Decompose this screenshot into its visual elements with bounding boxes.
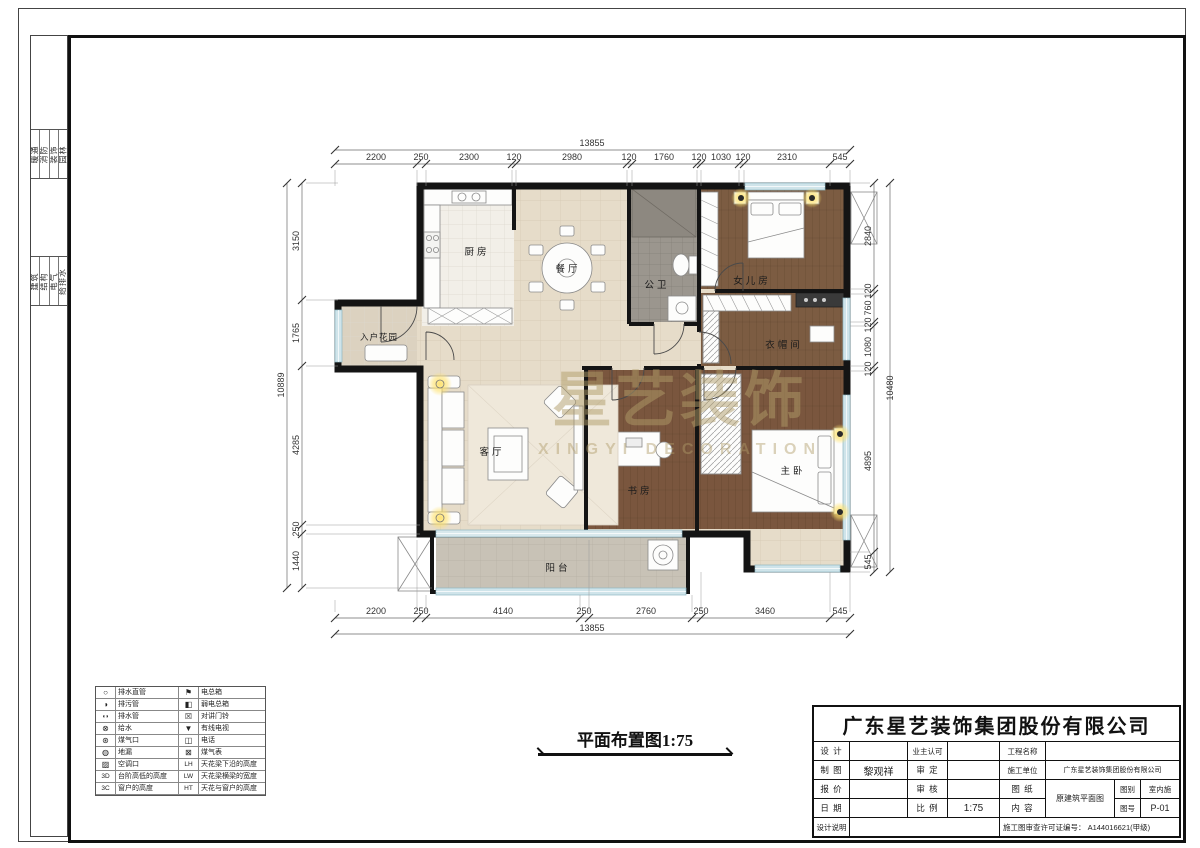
legend-label: 电总箱 (199, 687, 265, 699)
title-block-body: 设 计 业主认可 工程名称 制 图 黎观祥 审 定 施工单位 广东星艺装饰集团股… (814, 742, 1179, 837)
legend-label: 空调口 (116, 759, 179, 771)
value-number: P-01 (1141, 799, 1179, 818)
dim-right-total: 10480 (885, 375, 895, 400)
legend-icon: ◧ (179, 699, 199, 711)
dim-label: 250 (413, 152, 428, 162)
legend-table: ○ 排水直管 ⚑ 电总箱 ◑ 排污管 ◧ 弱电总箱 ◖◗ 排水管 ☒ 对讲门铃 … (95, 686, 266, 796)
value-builder: 广东星艺装饰集团股份有限公司 (1046, 761, 1179, 780)
value-draft: 黎观祥 (850, 761, 908, 780)
dim-label: 3460 (755, 606, 775, 616)
room-label-study: 书房 (627, 485, 652, 497)
legend-icon: 3C (96, 783, 116, 795)
dim-label: 120 (863, 317, 873, 332)
legend-icon: ◍ (96, 747, 116, 759)
dim-label: 250 (413, 606, 428, 616)
legend-icon: 3D (96, 771, 116, 783)
dim-label: 1765 (291, 323, 301, 343)
label-quote: 报 价 (814, 780, 850, 799)
dim-label: 1760 (654, 152, 674, 162)
legend-icon: ⚑ (179, 687, 199, 699)
legend-icon: ◫ (179, 735, 199, 747)
legend-icon: ⊗ (96, 723, 116, 735)
label-content: 内 容 (1000, 799, 1046, 818)
label-project: 工程名称 (1000, 742, 1046, 761)
plan-caption: 平面布置图1:75 (538, 726, 732, 756)
dim-label: 2200 (366, 606, 386, 616)
legend-icon: ○ (96, 687, 116, 699)
value-sheet-content: 原建筑平面图 (1046, 780, 1115, 818)
plan-caption-text: 平面布置图1:75 (538, 726, 732, 751)
dim-label: 4140 (493, 606, 513, 616)
label-approve: 审 定 (908, 761, 948, 780)
room-label-bath: 公卫 (644, 280, 669, 291)
legend-label: 电话 (199, 735, 265, 747)
dim-label: 250 (576, 606, 591, 616)
title-block: 广东星艺装饰集团股份有限公司 设 计 业主认可 工程名称 制 图 黎观祥 审 定… (812, 705, 1181, 838)
legend-icon: LW (179, 771, 199, 783)
label-builder: 施工单位 (1000, 761, 1046, 780)
legend-label: 排水管 (116, 711, 179, 723)
legend-label: 窗户的高度 (116, 783, 179, 795)
dim-label: 120 (863, 361, 873, 376)
legend-label: 天花梁横梁的宽度 (199, 771, 265, 783)
value-project (1046, 742, 1179, 761)
value-design (850, 742, 908, 761)
label-draft: 制 图 (814, 761, 850, 780)
legend-icon: LH (179, 759, 199, 771)
legend-label: 煤气口 (116, 735, 179, 747)
legend-icon: ☒ (179, 711, 199, 723)
dim-label: 2310 (777, 152, 797, 162)
legend-icon: ⊛ (96, 735, 116, 747)
company-name: 广东星艺装饰集团股份有限公司 (814, 707, 1179, 742)
legend-icon: HT (179, 783, 199, 795)
dim-label: 2300 (459, 152, 479, 162)
room-label-kitchen: 厨房 (464, 246, 489, 258)
caption-underline (538, 753, 732, 756)
legend-label: 排水直管 (116, 687, 179, 699)
dim-label: 1030 (711, 152, 731, 162)
value-notes (850, 818, 1000, 837)
legend-label: 有线电视 (199, 723, 265, 735)
legend-label: 给水 (116, 723, 179, 735)
label-sheet: 图 纸 (1000, 780, 1046, 799)
dim-label: 545 (832, 606, 847, 616)
legend-icon: ▼ (179, 723, 199, 735)
legend-icon: ◑ (96, 699, 116, 711)
dim-label: 120 (621, 152, 636, 162)
dim-label: 250 (291, 521, 301, 536)
label-number: 图号 (1115, 799, 1141, 818)
legend-icon: ⊠ (179, 747, 199, 759)
room-label-girls: 女儿房 (733, 275, 771, 287)
dim-label: 2980 (562, 152, 582, 162)
legend-label: 对讲门铃 (199, 711, 265, 723)
legend-label: 台阶高低的高度 (116, 771, 179, 783)
dim-label: 545 (863, 554, 873, 569)
dim-bottom-total: 13855 (579, 623, 604, 633)
value-quote (850, 780, 908, 799)
dim-label: 1440 (291, 551, 301, 571)
value-date (850, 799, 908, 818)
label-check: 审 核 (908, 780, 948, 799)
label-category: 图别 (1115, 780, 1141, 799)
dim-top-total: 13855 (579, 138, 604, 148)
drawing-sheet: 暖通 消防 装饰 园林 建筑 结构 电气 给排水 (0, 0, 1200, 848)
legend-label: 排污管 (116, 699, 179, 711)
dim-label: 120 (863, 283, 873, 298)
value-approve (948, 761, 1000, 780)
value-check (948, 780, 1000, 799)
legend-label: 地漏 (116, 747, 179, 759)
dim-label: 4895 (863, 451, 873, 471)
value-category: 室内施 (1141, 780, 1179, 799)
room-label-cloak: 衣帽间 (765, 339, 803, 351)
label-design: 设 计 (814, 742, 850, 761)
label-scale: 比 例 (908, 799, 948, 818)
permit-number: 施工图审查许可证编号： A144016621(甲级) (1000, 818, 1179, 837)
room-label-dining: 餐厅 (555, 263, 580, 275)
room-label-master: 主卧 (780, 465, 805, 477)
dim-label: 2840 (863, 226, 873, 246)
dim-label: 2200 (366, 152, 386, 162)
legend-label: 天花与窗户的高度 (199, 783, 265, 795)
dim-left-total: 10889 (276, 372, 286, 397)
label-owner-ok: 业主认可 (908, 742, 948, 761)
dim-label: 3150 (291, 231, 301, 251)
dim-label: 120 (506, 152, 521, 162)
legend-icon: ▨ (96, 759, 116, 771)
value-scale: 1:75 (948, 799, 1000, 818)
dim-label: 760 (863, 300, 873, 315)
label-date: 日 期 (814, 799, 850, 818)
room-label-living: 客厅 (479, 446, 504, 458)
dim-label: 2760 (636, 606, 656, 616)
legend-label: 煤气表 (199, 747, 265, 759)
legend-icon: ◖◗ (96, 711, 116, 723)
dim-label: 250 (693, 606, 708, 616)
dim-label: 120 (691, 152, 706, 162)
room-label-entry: 入户花园 (360, 332, 398, 342)
room-label-balcony: 阳台 (545, 562, 570, 574)
label-notes: 设计说明 (814, 818, 850, 837)
legend-label: 天花梁下沿的高度 (199, 759, 265, 771)
dim-label: 120 (735, 152, 750, 162)
dim-label: 4285 (291, 435, 301, 455)
legend-label: 弱电总箱 (199, 699, 265, 711)
dim-label: 1080 (863, 337, 873, 357)
value-owner-ok (948, 742, 1000, 761)
dim-label: 545 (832, 152, 847, 162)
